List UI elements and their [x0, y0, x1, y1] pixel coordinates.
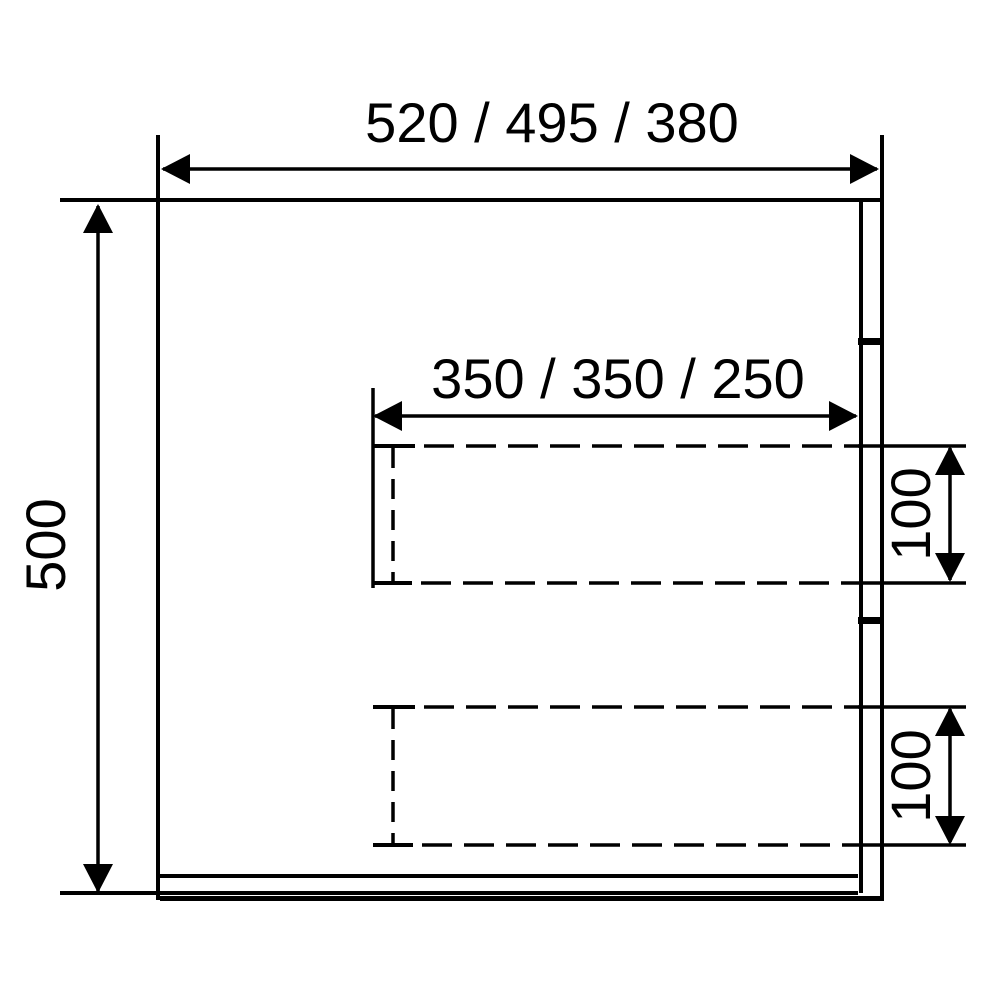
overall-height-bottom-arrowhead-icon — [83, 864, 113, 893]
overall-height-dimension-label: 500 — [14, 498, 77, 591]
overall-width-dimension-label: 520 / 495 / 380 — [365, 91, 739, 154]
overall-width-right-arrowhead-icon — [850, 154, 879, 184]
cabinet-dimension-diagram: 520 / 495 / 380 500 350 / 350 / 250 100 — [0, 0, 1000, 1000]
overall-height-top-arrowhead-icon — [83, 204, 113, 233]
lower-recess-height-dimension-label: 100 — [879, 729, 942, 822]
recess-width-dimension-label: 350 / 350 / 250 — [431, 347, 805, 410]
upper-recess-dashed-outline — [373, 446, 861, 583]
dimension-recess-width: 350 / 350 / 250 — [373, 347, 858, 588]
recess-width-right-arrowhead-icon — [829, 401, 858, 431]
dimension-upper-recess-height: 100 — [858, 446, 966, 583]
dimension-overall-height: 500 — [14, 204, 113, 893]
lower-recess-dashed-outline — [373, 707, 861, 845]
cabinet-outline — [60, 135, 884, 900]
upper-recess-height-dimension-label: 100 — [879, 467, 942, 560]
overall-width-left-arrowhead-icon — [161, 154, 190, 184]
technical-drawing-canvas: 520 / 495 / 380 500 350 / 350 / 250 100 — [0, 0, 1000, 1000]
dimension-overall-width: 520 / 495 / 380 — [161, 91, 879, 184]
recess-width-left-arrowhead-icon — [373, 401, 402, 431]
dimension-lower-recess-height: 100 — [858, 707, 966, 845]
